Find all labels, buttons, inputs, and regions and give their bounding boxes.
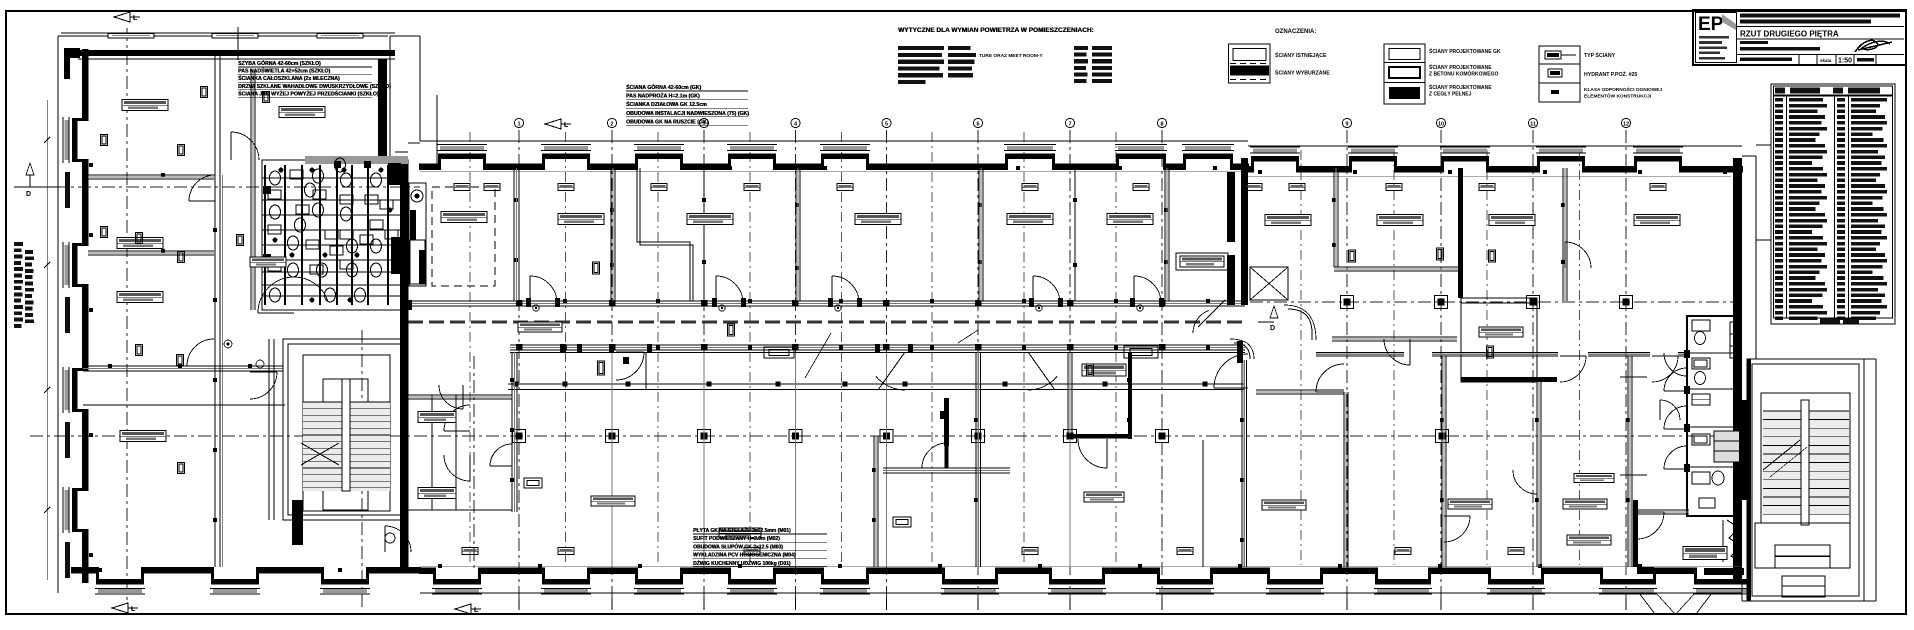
svg-text:SUFIT PODWIESZANY H=3.0m (M02): SUFIT PODWIESZANY H=3.0m (M02) [693,536,780,542]
svg-text:ŚCIANKA CAŁOSZKLANA (2x MLECZN: ŚCIANKA CAŁOSZKLANA (2x MLECZNA) [238,75,340,82]
svg-text:PAS NADPROŻA H=2.1m (GK): PAS NADPROŻA H=2.1m (GK) [626,93,700,100]
svg-text:1:50: 1:50 [1838,58,1852,65]
svg-text:ŚCIANY ISTNIEJĄCE: ŚCIANY ISTNIEJĄCE [1275,52,1327,59]
svg-text:OBUDOWA SŁUPÓW GK 2x12.5 (M03): OBUDOWA SŁUPÓW GK 2x12.5 (M03) [693,542,783,550]
svg-text:OBUDOWA INSTALACJI NADWIESZONA: OBUDOWA INSTALACJI NADWIESZONA (75) (GK) [626,111,749,117]
svg-text:11: 11 [1530,121,1536,127]
svg-text:12: 12 [1623,121,1629,127]
svg-text:HYDRANT P.POŻ. #25: HYDRANT P.POŻ. #25 [1584,71,1637,78]
svg-text:5: 5 [885,121,888,127]
svg-text:ŚCIANKA DZIAŁOWA GK 12.5cm: ŚCIANKA DZIAŁOWA GK 12.5cm [626,101,707,108]
svg-text:ŚCIANA GÓRNA 42-60cm (GK): ŚCIANA GÓRNA 42-60cm (GK) [626,83,701,91]
svg-text:6: 6 [976,121,979,127]
svg-text:KLASA ODPORNOŚCI OGNIOWEJ: KLASA ODPORNOŚCI OGNIOWEJ [1584,86,1663,93]
svg-text:Z BETONU KOMÓRKOWEGO: Z BETONU KOMÓRKOWEGO [1429,70,1498,78]
svg-text:PŁYTA GK NA STELAŻU 3x12.5mm (: PŁYTA GK NA STELAŻU 3x12.5mm (M01) [693,527,791,534]
svg-text:2: 2 [610,121,613,127]
svg-text:D: D [1270,325,1275,332]
svg-text:ŚCIANA JAK WYŻEJ POWYŻEJ PRZED: ŚCIANA JAK WYŻEJ POWYŻEJ PRZEDŚCIANKI (S… [238,90,379,97]
svg-text:Ł: Ł [133,15,138,22]
svg-text:EP: EP [1698,14,1724,35]
svg-text:ŚCIANY PROJEKTOWANE: ŚCIANY PROJEKTOWANE [1429,84,1492,91]
svg-text:9: 9 [1345,121,1348,127]
svg-text:1: 1 [517,121,520,127]
svg-text:OBUDOWA GK NA RUSZCIE (GK): OBUDOWA GK NA RUSZCIE (GK) [626,119,709,125]
svg-text:WYTYCZNE DLA WYMIAN POWIETRZA: WYTYCZNE DLA WYMIAN POWIETRZA W POMIESZC… [898,27,1094,34]
svg-text:RZUT DRUGIEGO PIĘTRA: RZUT DRUGIEGO PIĘTRA [1740,30,1839,39]
svg-text:WYKŁADZINA PCV HOMOGENICZNA (M: WYKŁADZINA PCV HOMOGENICZNA (M04) [693,553,796,559]
svg-text:8: 8 [1160,121,1163,127]
svg-text:D: D [26,191,31,198]
svg-text:SZYBA GÓRNA 42-60cm (SZKŁO): SZYBA GÓRNA 42-60cm (SZKŁO) [238,59,321,67]
svg-text:PAS NADŚWIETLA 42+52cm (SZKŁO): PAS NADŚWIETLA 42+52cm (SZKŁO) [238,68,330,75]
svg-text:TYP ŚCIANY: TYP ŚCIANY [1584,52,1616,59]
svg-text:ŚCIANY WYBURZANE: ŚCIANY WYBURZANE [1275,70,1330,77]
svg-text:ŚCIANY PROJEKTOWANE GK: ŚCIANY PROJEKTOWANE GK [1429,48,1501,55]
svg-text:ŚCIANY PROJEKTOWANE: ŚCIANY PROJEKTOWANE [1429,64,1492,71]
svg-text:OZNACZENIA:: OZNACZENIA: [1275,29,1316,35]
svg-text:Ł: Ł [474,607,479,614]
svg-text:Ł: Ł [564,122,569,129]
svg-text:TURE ORAZ MEET ROOM-Y: TURE ORAZ MEET ROOM-Y [979,53,1043,59]
svg-text:skala: skala [1820,58,1832,63]
svg-text:DŹWIG KUCHENNY UDŹWIG 100kg (D: DŹWIG KUCHENNY UDŹWIG 100kg (D01) [693,559,791,567]
svg-text:DRZWI SZKLANE WAHADŁOWE DWUSKR: DRZWI SZKLANE WAHADŁOWE DWUSKRZYDŁOWE (S… [238,84,391,90]
svg-text:Ł: Ł [131,606,136,613]
svg-text:10: 10 [1438,121,1444,127]
svg-text:7: 7 [1068,121,1071,127]
svg-text:Z CEGŁY PEŁNEJ: Z CEGŁY PEŁNEJ [1429,92,1472,98]
